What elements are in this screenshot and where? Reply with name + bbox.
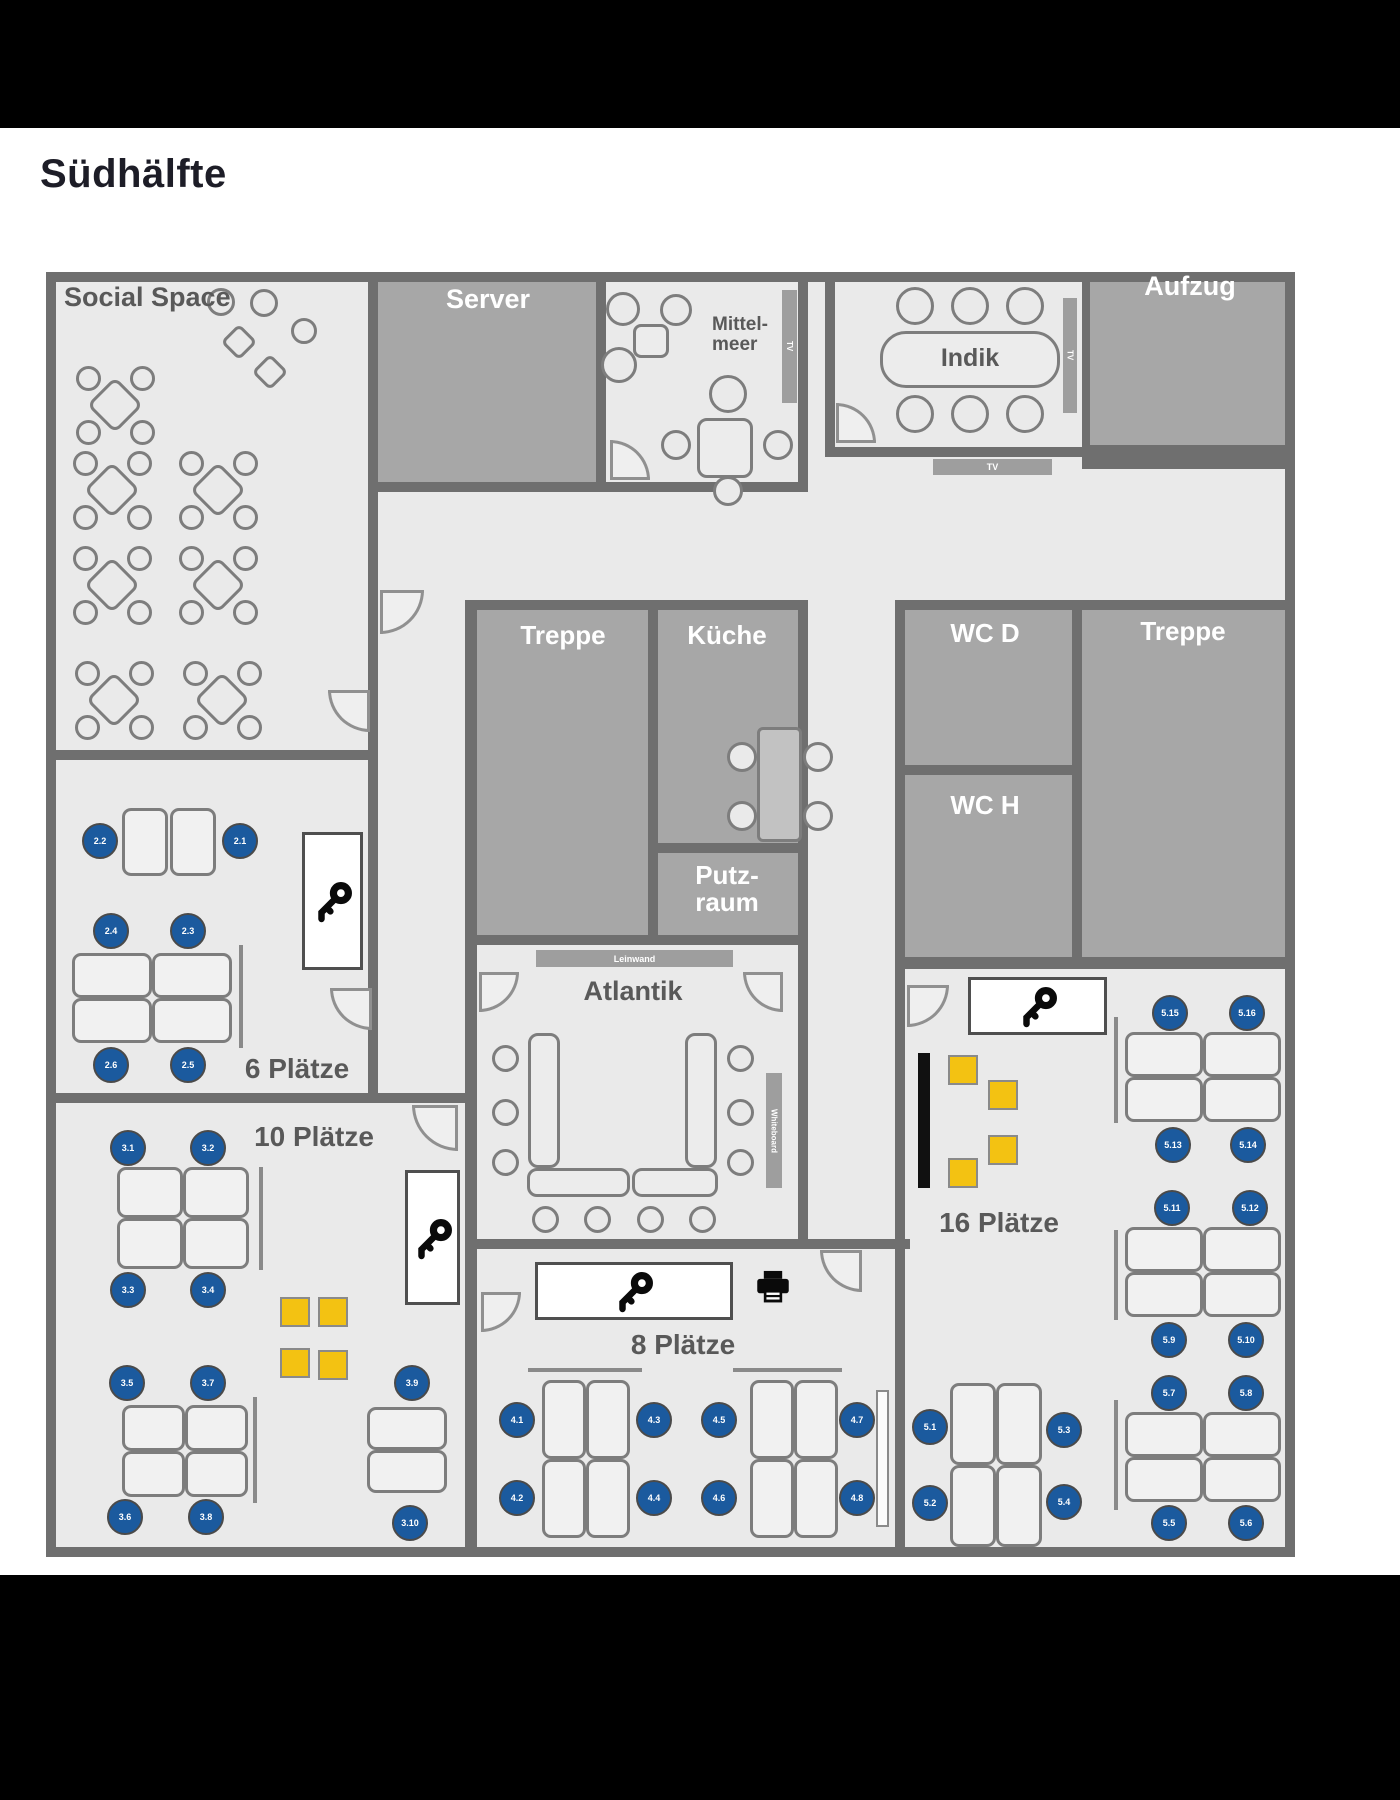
key-box: [968, 977, 1107, 1035]
chair: [689, 1206, 716, 1233]
stool-circle: [291, 318, 317, 344]
seat-2.4[interactable]: 2.4: [93, 913, 129, 949]
desk: [1203, 1077, 1281, 1122]
chair: [129, 715, 154, 740]
chair: [727, 1099, 754, 1126]
desk: [950, 1383, 996, 1465]
locker: [948, 1055, 978, 1085]
desk: [170, 808, 216, 876]
desk: [183, 1218, 249, 1269]
wall: [368, 272, 378, 1100]
locker: [318, 1297, 348, 1327]
desk: [117, 1167, 183, 1218]
desk: [72, 998, 152, 1043]
seat-5.13[interactable]: 5.13: [1155, 1127, 1191, 1163]
desk: [1203, 1272, 1281, 1317]
seat-label: 2.3: [182, 926, 195, 936]
seat-2.1[interactable]: 2.1: [222, 823, 258, 859]
seat-label: 4.6: [713, 1493, 726, 1503]
divider: [1114, 1400, 1118, 1510]
chair: [637, 1206, 664, 1233]
seat-label: 4.2: [511, 1493, 524, 1503]
room-aufzug: [1090, 282, 1295, 452]
seat-4.5[interactable]: 4.5: [701, 1402, 737, 1438]
divider: [239, 945, 243, 1048]
desk: [586, 1459, 630, 1538]
wall: [465, 935, 808, 945]
seat-label: 5.16: [1238, 1008, 1256, 1018]
seat-label: 5.1: [924, 1422, 937, 1432]
seat-5.15[interactable]: 5.15: [1152, 995, 1188, 1031]
seat-2.5[interactable]: 2.5: [170, 1047, 206, 1083]
table: [697, 418, 753, 478]
desk: [185, 1451, 248, 1497]
desk: [185, 1405, 248, 1451]
key-icon: [310, 878, 356, 924]
seat-label: 5.12: [1241, 1203, 1259, 1213]
locker: [318, 1350, 348, 1380]
chair: [727, 801, 757, 831]
seat-5.11[interactable]: 5.11: [1154, 1190, 1190, 1226]
desk: [367, 1450, 447, 1493]
chair: [179, 546, 204, 571]
wall: [46, 750, 376, 760]
wall: [1082, 272, 1090, 455]
desk: [1125, 1457, 1203, 1502]
chair: [76, 420, 101, 445]
seat-2.6[interactable]: 2.6: [93, 1047, 129, 1083]
desk: [152, 953, 232, 998]
label-atlantik: Atlantik: [583, 977, 682, 1005]
desk: [1125, 1272, 1203, 1317]
desk: [1125, 1227, 1203, 1272]
divider: [528, 1368, 642, 1372]
wall: [798, 600, 808, 1249]
chair: [492, 1099, 519, 1126]
desk: [1203, 1032, 1281, 1077]
seat-label: 4.1: [511, 1415, 524, 1425]
seat-label: 5.10: [1237, 1335, 1255, 1345]
divider: [259, 1167, 263, 1270]
sign-sign-tv-mittelmeer: TV: [782, 290, 797, 403]
chair: [130, 366, 155, 391]
chair: [233, 600, 258, 625]
seat-3.9[interactable]: 3.9: [394, 1365, 430, 1401]
chair: [1006, 395, 1044, 433]
seat-3.4[interactable]: 3.4: [190, 1272, 226, 1308]
wall: [825, 272, 835, 455]
seat-label: 3.4: [202, 1285, 215, 1295]
seat-label: 2.2: [94, 836, 107, 846]
wall: [465, 600, 477, 1557]
desk: [996, 1465, 1042, 1547]
table: [527, 1168, 630, 1197]
seat-label: 3.3: [122, 1285, 135, 1295]
seat-label: 5.4: [1058, 1497, 1071, 1507]
chair: [709, 375, 747, 413]
chair: [73, 505, 98, 530]
key-icon: [1015, 983, 1061, 1029]
desk: [122, 1451, 185, 1497]
whiteboard-black: [918, 1053, 930, 1188]
seat-label: 3.2: [202, 1143, 215, 1153]
seat-5.1[interactable]: 5.1: [912, 1409, 948, 1445]
seat-4.1[interactable]: 4.1: [499, 1402, 535, 1438]
seat-label: 5.11: [1163, 1203, 1180, 1213]
chair: [951, 395, 989, 433]
seat-5.5[interactable]: 5.5: [1151, 1505, 1187, 1541]
chair: [127, 546, 152, 571]
locker: [280, 1297, 310, 1327]
key-box: [405, 1170, 460, 1305]
divider: [733, 1368, 842, 1372]
label-6-plaetze: 6 Plätze: [245, 1054, 349, 1083]
key-icon: [611, 1268, 657, 1314]
seat-label: 4.7: [851, 1415, 864, 1425]
seat-5.4[interactable]: 5.4: [1046, 1484, 1082, 1520]
chair: [237, 715, 262, 740]
label-kueche: Küche: [687, 622, 766, 649]
label-mittelmeer: Mittel- meer: [712, 315, 768, 355]
chair: [129, 661, 154, 686]
seat-label: 3.1: [122, 1143, 135, 1153]
desk: [1203, 1227, 1281, 1272]
desk: [122, 808, 168, 876]
seat-5.14[interactable]: 5.14: [1230, 1127, 1266, 1163]
desk: [950, 1465, 996, 1547]
seat-5.2[interactable]: 5.2: [912, 1485, 948, 1521]
printer: [750, 1266, 796, 1310]
chair: [183, 715, 208, 740]
label-treppe-mitte: Treppe: [520, 622, 605, 649]
locker: [948, 1158, 978, 1188]
seat-label: 2.1: [234, 836, 247, 846]
locker: [280, 1348, 310, 1378]
seat-5.12[interactable]: 5.12: [1232, 1190, 1268, 1226]
seat-label: 4.4: [648, 1493, 661, 1503]
seat-label: 5.9: [1163, 1335, 1176, 1345]
chair: [127, 451, 152, 476]
chair: [532, 1206, 559, 1233]
desk: [750, 1380, 794, 1459]
label-putzraum: Putz- raum: [695, 862, 759, 917]
seat-5.3[interactable]: 5.3: [1046, 1412, 1082, 1448]
chair: [492, 1045, 519, 1072]
wall: [798, 272, 808, 490]
sign-sign-whiteboard: Whiteboard: [766, 1073, 782, 1188]
wall: [895, 957, 1295, 969]
wall: [596, 272, 606, 490]
wall: [1082, 445, 1295, 469]
seat-label: 4.3: [648, 1415, 661, 1425]
chair: [896, 287, 934, 325]
locker: [988, 1135, 1018, 1165]
table: [632, 1168, 718, 1197]
seat-3.6[interactable]: 3.6: [107, 1499, 143, 1535]
wall: [46, 1093, 470, 1103]
seat-4.4[interactable]: 4.4: [636, 1480, 672, 1516]
wall: [825, 447, 1090, 457]
seat-5.7[interactable]: 5.7: [1151, 1375, 1187, 1411]
locker: [988, 1080, 1018, 1110]
label-8-plaetze: 8 Plätze: [631, 1330, 735, 1359]
printer-icon: [751, 1267, 795, 1309]
wall: [903, 765, 1073, 775]
sign-sign-tv-wand: TV: [933, 459, 1052, 475]
chair: [727, 742, 757, 772]
chair: [660, 294, 692, 326]
chair: [127, 600, 152, 625]
seat-4.2[interactable]: 4.2: [499, 1480, 535, 1516]
desk: [542, 1459, 586, 1538]
chair: [127, 505, 152, 530]
chair: [233, 451, 258, 476]
desk: [117, 1218, 183, 1269]
seat-4.6[interactable]: 4.6: [701, 1480, 737, 1516]
seat-5.10[interactable]: 5.10: [1228, 1322, 1264, 1358]
seat-3.7[interactable]: 3.7: [190, 1365, 226, 1401]
sign-sign-leinwand: Leinwand: [536, 950, 733, 967]
chair: [727, 1149, 754, 1176]
desk: [72, 953, 152, 998]
label-10-plaetze: 10 Plätze: [254, 1122, 374, 1151]
floor-plan: LeinwandWhiteboardTVTVTVSocial SpaceServ…: [0, 0, 1400, 1800]
seat-label: 3.5: [121, 1378, 134, 1388]
wall: [465, 1239, 910, 1249]
chair: [492, 1149, 519, 1176]
stool-circle: [250, 289, 278, 317]
wall: [1072, 600, 1082, 957]
chair: [130, 420, 155, 445]
wall: [656, 843, 798, 853]
seat-4.8[interactable]: 4.8: [839, 1480, 875, 1516]
label-wc-d: WC D: [950, 620, 1019, 647]
chair: [237, 661, 262, 686]
chair: [661, 430, 691, 460]
table: [633, 324, 669, 358]
chair: [75, 661, 100, 686]
wall: [895, 600, 1295, 610]
table: [685, 1033, 717, 1168]
label-social-space: Social Space: [64, 283, 231, 311]
table: [757, 727, 802, 842]
seat-label: 4.5: [713, 1415, 726, 1425]
label-treppe-rechts: Treppe: [1140, 618, 1225, 645]
seat-3.8[interactable]: 3.8: [188, 1499, 224, 1535]
wall: [648, 610, 658, 940]
seat-5.8[interactable]: 5.8: [1228, 1375, 1264, 1411]
chair: [763, 430, 793, 460]
seat-label: 5.8: [1240, 1388, 1253, 1398]
wall: [46, 1547, 1295, 1557]
chair: [713, 476, 743, 506]
seat-label: 3.10: [401, 1518, 419, 1528]
chair: [73, 451, 98, 476]
desk: [996, 1383, 1042, 1465]
sign-sign-tv-indik: TV: [1063, 298, 1077, 413]
desk: [1125, 1032, 1203, 1077]
seat-5.9[interactable]: 5.9: [1151, 1322, 1187, 1358]
chair: [1006, 287, 1044, 325]
seat-label: 3.7: [202, 1378, 215, 1388]
wall: [465, 600, 808, 610]
seat-3.5[interactable]: 3.5: [109, 1365, 145, 1401]
desk: [750, 1459, 794, 1538]
seat-label: 2.4: [105, 926, 118, 936]
seat-4.7[interactable]: 4.7: [839, 1402, 875, 1438]
chair: [233, 546, 258, 571]
seat-label: 5.5: [1163, 1518, 1176, 1528]
whiteboard-white: [876, 1390, 889, 1527]
desk: [1203, 1412, 1281, 1457]
seat-label: 3.8: [200, 1512, 213, 1522]
seat-4.3[interactable]: 4.3: [636, 1402, 672, 1438]
label-wc-h: WC H: [950, 792, 1019, 819]
wall: [46, 272, 1295, 282]
desk: [122, 1405, 185, 1451]
chair: [75, 715, 100, 740]
seat-label: 4.8: [851, 1493, 864, 1503]
label-aufzug: Aufzug: [1144, 272, 1235, 300]
chair: [179, 451, 204, 476]
desk: [542, 1380, 586, 1459]
seat-2.3[interactable]: 2.3: [170, 913, 206, 949]
seat-label: 5.6: [1240, 1518, 1253, 1528]
seat-2.2[interactable]: 2.2: [82, 823, 118, 859]
seat-3.1[interactable]: 3.1: [110, 1130, 146, 1166]
seat-5.6[interactable]: 5.6: [1228, 1505, 1264, 1541]
label-16-plaetze: 16 Plätze: [939, 1208, 1059, 1237]
seat-label: 5.15: [1161, 1008, 1179, 1018]
label-indik: Indik: [941, 345, 999, 371]
chair: [179, 600, 204, 625]
seat-label: 5.7: [1163, 1388, 1176, 1398]
key-box: [535, 1262, 733, 1320]
chair: [601, 347, 637, 383]
seat-label: 5.2: [924, 1498, 937, 1508]
label-server: Server: [446, 285, 530, 313]
chair: [183, 661, 208, 686]
chair: [73, 546, 98, 571]
key-box: [302, 832, 363, 970]
wall: [895, 600, 905, 1557]
desk: [794, 1380, 838, 1459]
seat-label: 5.14: [1239, 1140, 1257, 1150]
desk: [367, 1407, 447, 1450]
desk: [183, 1167, 249, 1218]
desk: [1203, 1457, 1281, 1502]
seat-label: 3.9: [406, 1378, 419, 1388]
chair: [803, 742, 833, 772]
seat-3.2[interactable]: 3.2: [190, 1130, 226, 1166]
divider: [1114, 1017, 1118, 1123]
desk: [152, 998, 232, 1043]
desk: [586, 1380, 630, 1459]
chair: [179, 505, 204, 530]
divider: [1114, 1230, 1118, 1320]
desk: [794, 1459, 838, 1538]
chair: [803, 801, 833, 831]
chair: [73, 600, 98, 625]
seat-label: 2.6: [105, 1060, 118, 1070]
wall: [46, 272, 56, 1557]
key-icon: [410, 1215, 456, 1261]
table: [528, 1033, 560, 1168]
seat-3.3[interactable]: 3.3: [110, 1272, 146, 1308]
seat-label: 5.3: [1058, 1425, 1071, 1435]
seat-3.10[interactable]: 3.10: [392, 1505, 428, 1541]
room-treppe-mitte: [477, 610, 648, 940]
chair: [584, 1206, 611, 1233]
chair: [727, 1045, 754, 1072]
seat-label: 2.5: [182, 1060, 195, 1070]
chair: [606, 292, 640, 326]
chair: [76, 366, 101, 391]
seat-label: 3.6: [119, 1512, 132, 1522]
desk: [1125, 1412, 1203, 1457]
chair: [951, 287, 989, 325]
desk: [1125, 1077, 1203, 1122]
seat-5.16[interactable]: 5.16: [1229, 995, 1265, 1031]
seat-label: 5.13: [1164, 1140, 1182, 1150]
chair: [233, 505, 258, 530]
chair: [896, 395, 934, 433]
room-treppe-rechts: [1082, 610, 1295, 957]
divider: [253, 1397, 257, 1503]
